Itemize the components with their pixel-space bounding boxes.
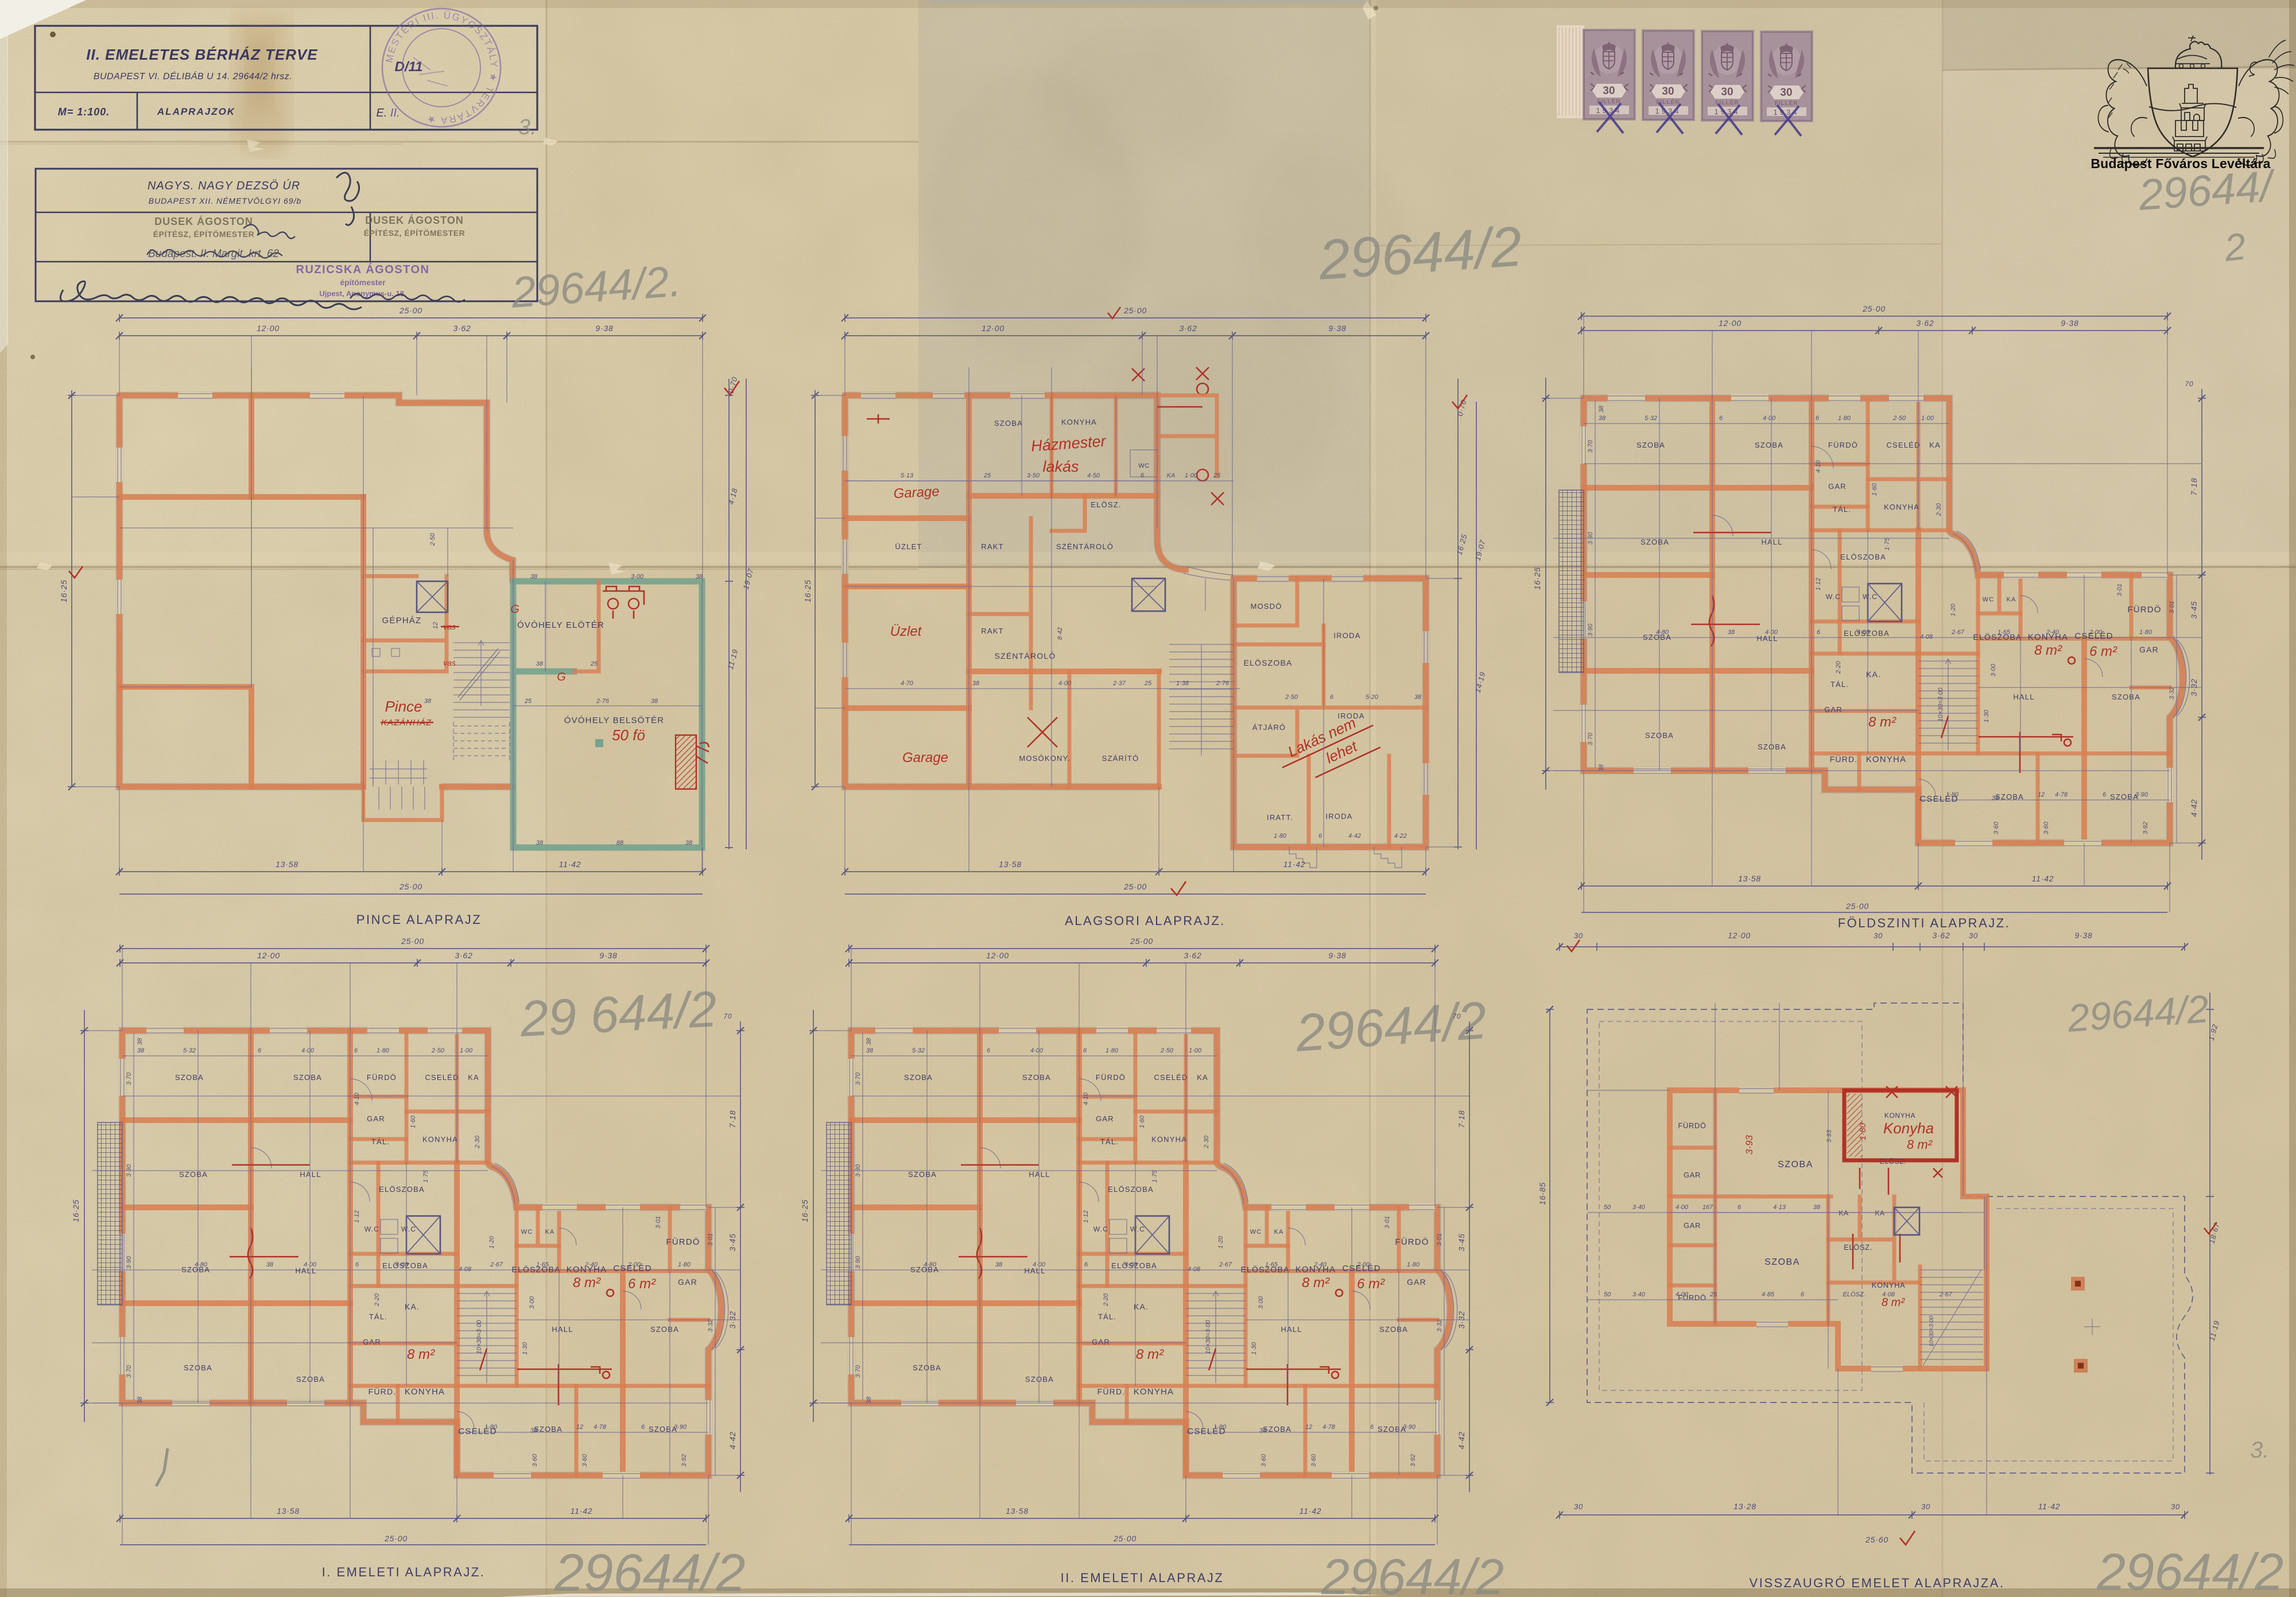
svg-text:4·50: 4·50 [1087, 472, 1100, 479]
svg-text:lakás: lakás [1042, 458, 1079, 475]
svg-text:DUSEK ÁGOSTON: DUSEK ÁGOSTON [365, 214, 464, 226]
svg-text:IRODA: IRODA [1325, 812, 1352, 821]
svg-text:50 fö: 50 fö [612, 726, 645, 744]
svg-text:ELÖSZOBA: ELÖSZOBA [1243, 658, 1292, 667]
svg-text:ÓVÓHELY BELSÖTÉR: ÓVÓHELY BELSÖTÉR [564, 715, 665, 725]
svg-text:30: 30 [1921, 1502, 1930, 1511]
svg-text:25·60: 25·60 [1865, 1535, 1888, 1544]
svg-text:29 644/2: 29 644/2 [518, 980, 718, 1047]
svg-text:Konyha: Konyha [1883, 1120, 1934, 1137]
svg-text:25·00: 25·00 [399, 882, 422, 891]
svg-text:29644/: 29644/ [2136, 161, 2278, 220]
svg-text:KA: KA [1875, 1209, 1884, 1217]
svg-text:építömester: építömester [340, 278, 386, 287]
svg-text:4·13: 4·13 [1773, 1204, 1786, 1211]
svg-text:12·00: 12·00 [257, 324, 280, 333]
svg-text:25: 25 [983, 472, 991, 479]
svg-text:2·76: 2·76 [1216, 680, 1230, 687]
svg-text:ÜZLET: ÜZLET [895, 542, 922, 551]
svg-text:MOSDÓ: MOSDÓ [1250, 602, 1282, 611]
svg-text:38: 38 [1813, 1204, 1821, 1211]
svg-text:KONYHA: KONYHA [1872, 1281, 1906, 1289]
svg-text:11·42: 11·42 [1283, 860, 1306, 869]
svg-text:SZOBA: SZOBA [994, 419, 1023, 428]
svg-text:30: 30 [1574, 931, 1583, 940]
svg-text:ÁTJÁRÓ: ÁTJÁRÓ [1252, 723, 1286, 732]
svg-text:6: 6 [1330, 694, 1334, 701]
svg-text:13·58: 13·58 [999, 860, 1022, 869]
svg-text:38: 38 [530, 573, 538, 580]
svg-text:29644/2: 29644/2 [2096, 1544, 2283, 1597]
svg-text:1·38: 1·38 [1176, 680, 1189, 687]
svg-text:BUDAPEST XII. NÉMETVÖLGYI 69/: BUDAPEST XII. NÉMETVÖLGYI 69/b [149, 196, 302, 205]
svg-text:PINCE ALAPRAJZ: PINCE ALAPRAJZ [356, 912, 482, 927]
svg-text:Budapest. II. Margit. krt. 62: Budapest. II. Margit. krt. 62 [148, 248, 280, 260]
svg-text:1·00: 1·00 [1185, 472, 1198, 479]
svg-text:8·42: 8·42 [1057, 627, 1064, 640]
svg-text:ALAPRAJZOK: ALAPRAJZOK [157, 106, 235, 117]
svg-text:2·67: 2·67 [1939, 1291, 1953, 1298]
svg-text:SZOBA: SZOBA [1764, 1257, 1800, 1267]
svg-text:M= 1:100.: M= 1:100. [58, 106, 110, 118]
svg-text:4·00: 4·00 [1058, 680, 1072, 687]
svg-text:II. EMELETI ALAPRAJZ: II. EMELETI ALAPRAJZ [1061, 1571, 1224, 1585]
svg-text:9·38: 9·38 [2074, 931, 2092, 940]
svg-text:4·08: 4·08 [1882, 1291, 1895, 1298]
svg-text:25: 25 [1709, 1291, 1717, 1298]
svg-text:Üzlet: Üzlet [890, 624, 922, 639]
svg-text:2·50: 2·50 [1285, 694, 1298, 701]
svg-text:II. EMELETES BÉRHÁZ TERVE: II. EMELETES BÉRHÁZ TERVE [86, 46, 318, 63]
svg-text:I. EMELETI ALAPRAJZ.: I. EMELETI ALAPRAJZ. [322, 1565, 486, 1579]
svg-text:25: 25 [1144, 680, 1152, 687]
svg-text:12·00: 12·00 [982, 324, 1004, 333]
svg-text:3·93: 3·93 [1744, 1134, 1755, 1155]
svg-text:11·42: 11·42 [559, 860, 581, 869]
svg-text:6: 6 [1318, 833, 1322, 840]
svg-text:RAKT: RAKT [981, 542, 1003, 551]
svg-text:29644/2: 29644/2 [1321, 1548, 1504, 1597]
svg-text:38: 38 [685, 840, 693, 846]
svg-text:4·22: 4·22 [1394, 833, 1407, 840]
svg-text:GAR: GAR [1684, 1221, 1701, 1230]
svg-text:3·62: 3·62 [1932, 931, 1950, 940]
svg-text:38: 38 [1414, 694, 1422, 701]
svg-text:RAKT: RAKT [981, 627, 1003, 635]
svg-text:RUZICSKA ÁGOSTON: RUZICSKA ÁGOSTON [296, 263, 430, 276]
svg-text:25·00: 25·00 [1123, 882, 1147, 891]
svg-text:ELÖSZ.: ELÖSZ. [1843, 1291, 1865, 1298]
svg-text:4·42: 4·42 [1348, 833, 1361, 840]
svg-text:10×30=3·00: 10×30=3·00 [1929, 1316, 1935, 1347]
svg-text:16·25: 16·25 [803, 580, 812, 603]
svg-text:25·00: 25·00 [399, 306, 422, 315]
svg-text:KONYHA: KONYHA [1061, 418, 1097, 426]
svg-text:13·58: 13·58 [276, 860, 298, 869]
svg-text:3·62: 3·62 [453, 324, 471, 333]
svg-text:9·38: 9·38 [1328, 324, 1346, 333]
svg-text:SZÉNTÁROLÓ: SZÉNTÁROLÓ [995, 651, 1056, 660]
svg-text:3·93: 3·93 [1826, 1129, 1833, 1143]
svg-text:12: 12 [432, 622, 439, 629]
svg-text:38: 38 [696, 573, 703, 580]
svg-text:50: 50 [1604, 1291, 1611, 1298]
svg-text:1·80: 1·80 [1274, 833, 1287, 840]
svg-text:6: 6 [1141, 472, 1145, 479]
svg-text:ELÖSZ.: ELÖSZ. [1844, 1243, 1872, 1252]
svg-text:G: G [557, 671, 566, 683]
svg-text:G: G [510, 603, 519, 616]
svg-text:4·00: 4·00 [1676, 1291, 1689, 1298]
svg-text:2·37: 2·37 [1112, 680, 1126, 687]
svg-text:3·00: 3·00 [631, 573, 644, 580]
svg-text:KONYHA: KONYHA [1884, 1112, 1915, 1120]
svg-text:9·38: 9·38 [595, 324, 613, 333]
svg-text:4·70: 4·70 [901, 680, 914, 687]
svg-text:1·80: 1·80 [1858, 1122, 1868, 1140]
svg-text:SZOBA: SZOBA [1778, 1160, 1813, 1169]
svg-text:4·85: 4·85 [1762, 1291, 1775, 1298]
svg-text:3.: 3. [518, 115, 537, 139]
svg-text:6: 6 [1737, 1204, 1742, 1211]
svg-text:16·25: 16·25 [59, 580, 68, 603]
svg-text:3·40: 3·40 [1632, 1291, 1646, 1298]
svg-text:KA: KA [1839, 1209, 1848, 1217]
svg-text:3.: 3. [2250, 1437, 2269, 1463]
svg-text:Pince: Pince [385, 698, 422, 715]
svg-text:2·76: 2·76 [596, 698, 610, 705]
svg-text:25: 25 [590, 660, 598, 667]
svg-text:5·20: 5·20 [1366, 694, 1379, 701]
svg-text:12·00: 12·00 [1728, 931, 1751, 940]
svg-text:11·42: 11·42 [2038, 1502, 2061, 1511]
svg-text:8 m²: 8 m² [1907, 1137, 1933, 1152]
svg-text:88: 88 [616, 840, 624, 846]
svg-text:WC: WC [1138, 463, 1150, 469]
svg-text:29644/2: 29644/2 [554, 1544, 746, 1597]
svg-text:ÉPÍTÉSZ, ÉPÍTÖMESTER: ÉPÍTÉSZ, ÉPÍTÖMESTER [153, 230, 254, 239]
svg-text:vas: vas [443, 658, 456, 667]
svg-text:FÖLDSZINTI ALAPRAJZ.: FÖLDSZINTI ALAPRAJZ. [1838, 916, 2011, 930]
svg-text:50: 50 [1604, 1204, 1611, 1211]
svg-text:KA: KA [1167, 472, 1176, 479]
svg-text:38: 38 [536, 660, 544, 667]
svg-text:VISSZAUGRÓ EMELET ALAPRAJZA.: VISSZAUGRÓ EMELET ALAPRAJZA. [1750, 1576, 2005, 1590]
svg-text:SZÁRÍTÓ: SZÁRÍTÓ [1102, 754, 1139, 763]
svg-text:NAGYS. NAGY DEZSÖ ÚR: NAGYS. NAGY DEZSÖ ÚR [148, 179, 300, 192]
svg-text:3·50: 3·50 [1027, 472, 1040, 479]
svg-text:4·00: 4·00 [1676, 1204, 1689, 1211]
svg-text:IRATT.: IRATT. [1267, 813, 1293, 822]
svg-text:30: 30 [1574, 1502, 1583, 1511]
svg-text:2·50: 2·50 [429, 533, 436, 546]
svg-text:SZÉNTÁROLÓ: SZÉNTÁROLÓ [1056, 542, 1114, 551]
svg-text:Garage: Garage [902, 750, 948, 766]
svg-text:Garage: Garage [893, 484, 940, 502]
svg-text:BUDAPEST VI. DÉLIBÁB U 14. 2: BUDAPEST VI. DÉLIBÁB U 14. 29644/2 hrsz. [94, 71, 292, 81]
svg-text:FÜRDÖ: FÜRDÖ [1678, 1121, 1706, 1130]
svg-text:3·40: 3·40 [1632, 1204, 1646, 1211]
svg-text:ALAGSORI ALAPRAJZ.: ALAGSORI ALAPRAJZ. [1065, 914, 1225, 928]
svg-text:25: 25 [1213, 472, 1221, 479]
svg-text:GÉPHÁZ: GÉPHÁZ [382, 616, 422, 625]
svg-text:30: 30 [1874, 931, 1883, 940]
svg-text:8 m²: 8 m² [1882, 1296, 1905, 1309]
svg-text:25: 25 [524, 698, 532, 705]
svg-text:5·13: 5·13 [901, 472, 914, 479]
svg-text:ÓVÓHELY ELÖTÉR: ÓVÓHELY ELÖTÉR [517, 620, 604, 630]
svg-text:38: 38 [651, 698, 658, 705]
svg-text:16·85: 16·85 [1538, 1182, 1547, 1205]
svg-text:38: 38 [972, 680, 980, 687]
svg-text:30: 30 [1969, 931, 1978, 940]
svg-text:3·62: 3·62 [1179, 324, 1197, 333]
svg-text:38: 38 [536, 840, 544, 846]
svg-text:25·00: 25·00 [1123, 306, 1147, 315]
svg-text:E. II.: E. II. [376, 107, 400, 119]
svg-text:38: 38 [424, 698, 432, 705]
svg-text:ELÖSZ.: ELÖSZ. [1091, 500, 1121, 509]
svg-text:IRODA: IRODA [1333, 631, 1360, 640]
svg-text:ÉPÍTÉSZ, ÉPÍTÖMESTER: ÉPÍTÉSZ, ÉPÍTÖMESTER [364, 228, 465, 238]
svg-text:DUSEK ÁGOSTON: DUSEK ÁGOSTON [154, 215, 253, 227]
svg-text:13·28: 13·28 [1733, 1502, 1756, 1511]
svg-text:30: 30 [2171, 1502, 2180, 1511]
svg-text:2: 2 [2222, 224, 2248, 269]
svg-text:GAR: GAR [1684, 1171, 1701, 1179]
svg-text:167: 167 [1702, 1204, 1713, 1211]
svg-text:MOSÓKONY.: MOSÓKONY. [1019, 754, 1070, 763]
svg-text:6: 6 [1801, 1291, 1805, 1298]
